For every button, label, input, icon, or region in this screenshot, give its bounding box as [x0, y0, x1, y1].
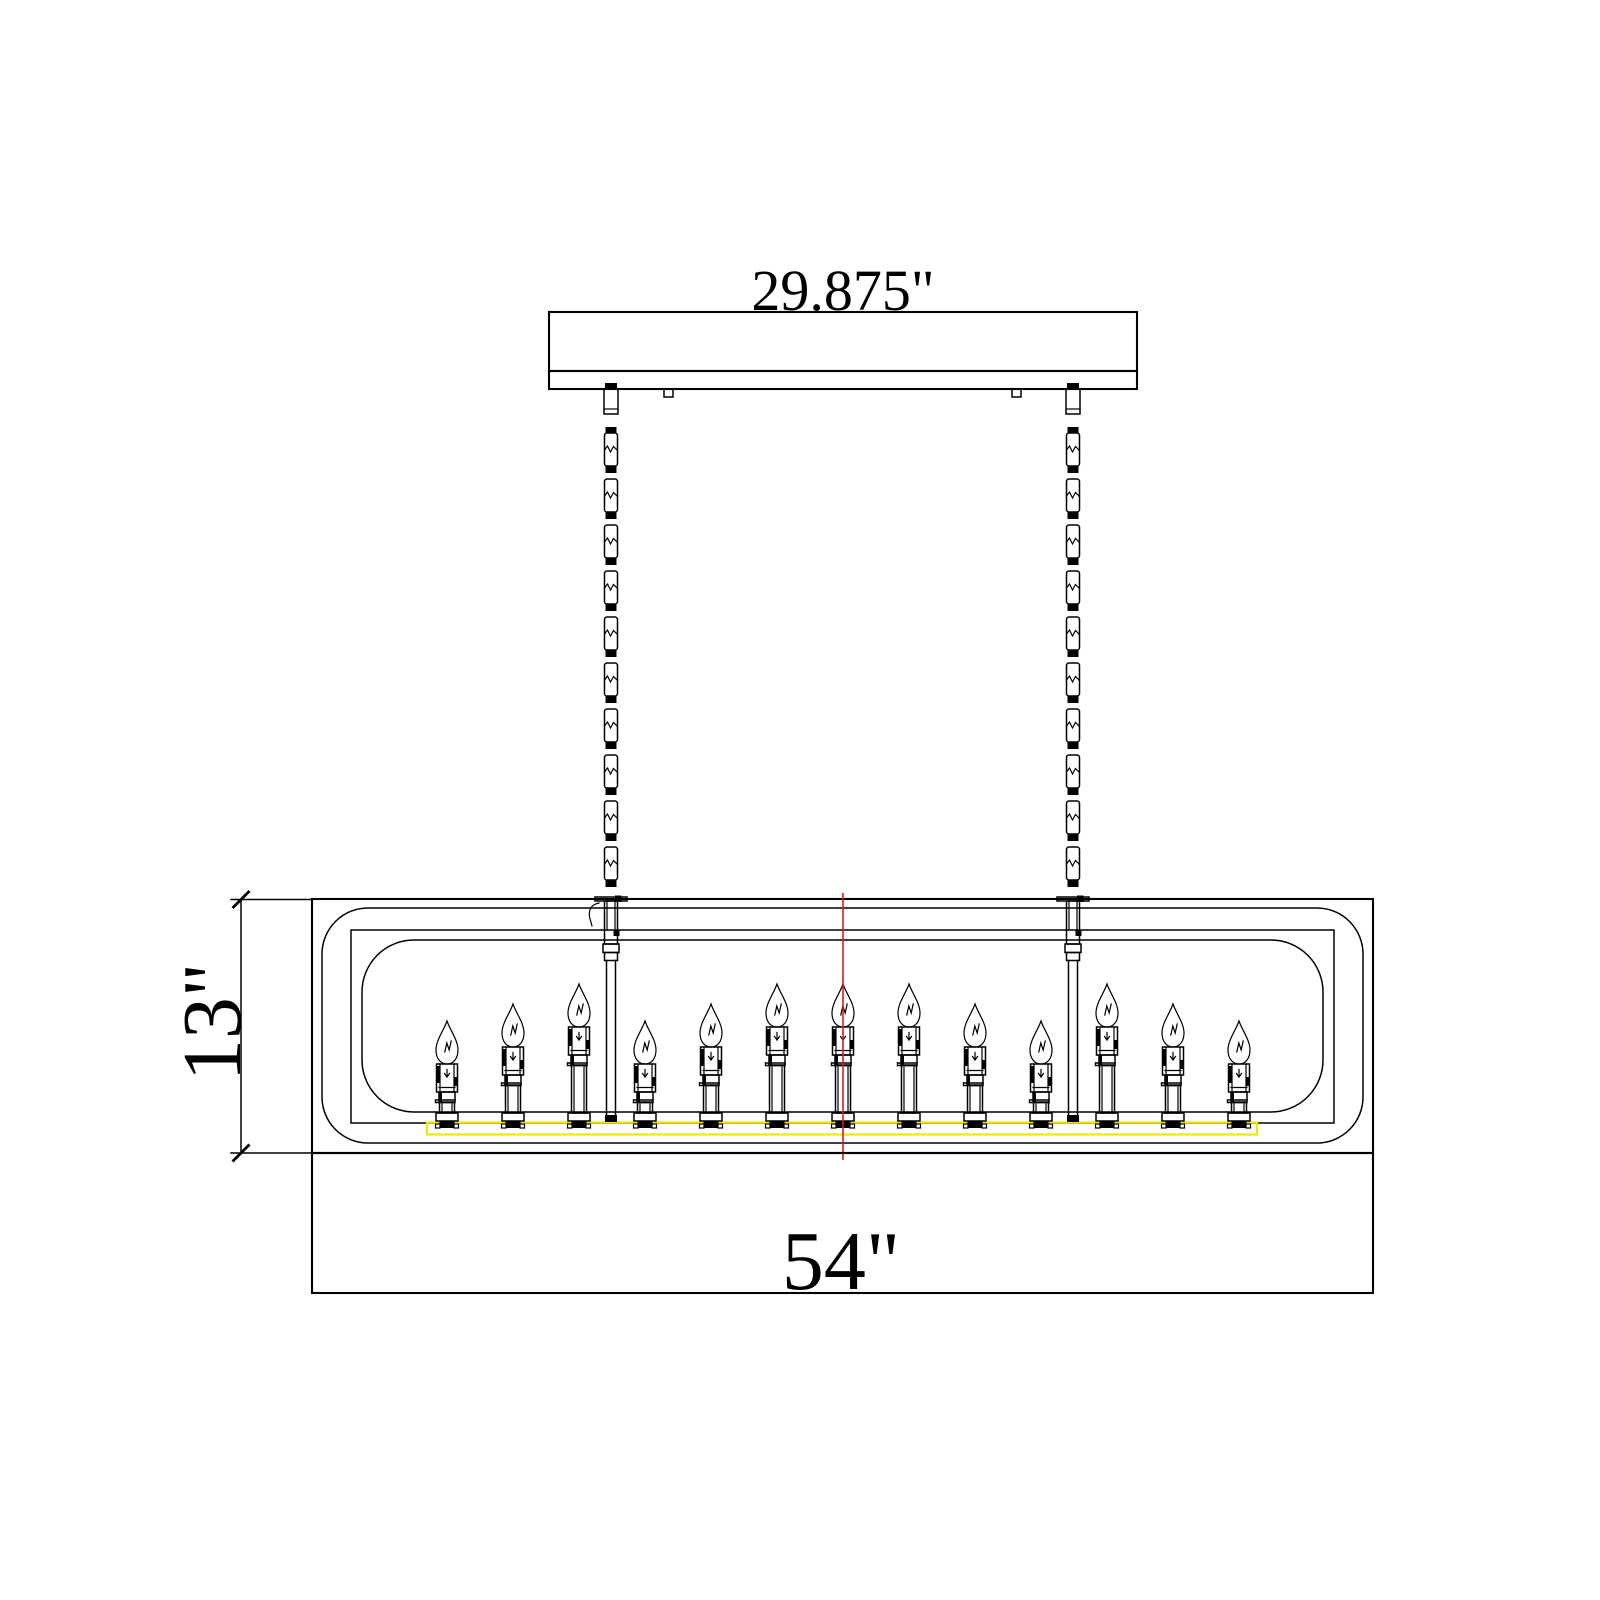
fixture-width-label: 54": [782, 1215, 900, 1308]
canopy-screw-right: [1012, 389, 1021, 397]
candle-12: [1162, 1004, 1185, 1128]
canopy-band: [549, 371, 1137, 389]
canopy-screw-left: [664, 389, 673, 397]
chain-2: [1057, 383, 1089, 1122]
candle-3: [568, 984, 591, 1128]
candle-2: [502, 1004, 525, 1128]
height-dimension: 13": [166, 892, 314, 1161]
dimension-drawing: 29.875" 13" 54": [0, 0, 1600, 1600]
fixture-height-label: 13": [166, 963, 259, 1081]
candle-11: [1096, 984, 1119, 1128]
candle-5: [700, 1004, 723, 1128]
canopy: [549, 312, 1137, 397]
width-dimension: 54": [312, 1153, 1373, 1308]
candle-6: [766, 984, 789, 1128]
candle-9: [964, 1004, 987, 1128]
wire-detail: [589, 903, 599, 926]
chain-1: [595, 383, 627, 1122]
canopy-width-label: 29.875": [751, 258, 934, 323]
candle-8: [898, 984, 921, 1128]
chandelier-line-drawing: 29.875" 13" 54": [0, 0, 1600, 1600]
